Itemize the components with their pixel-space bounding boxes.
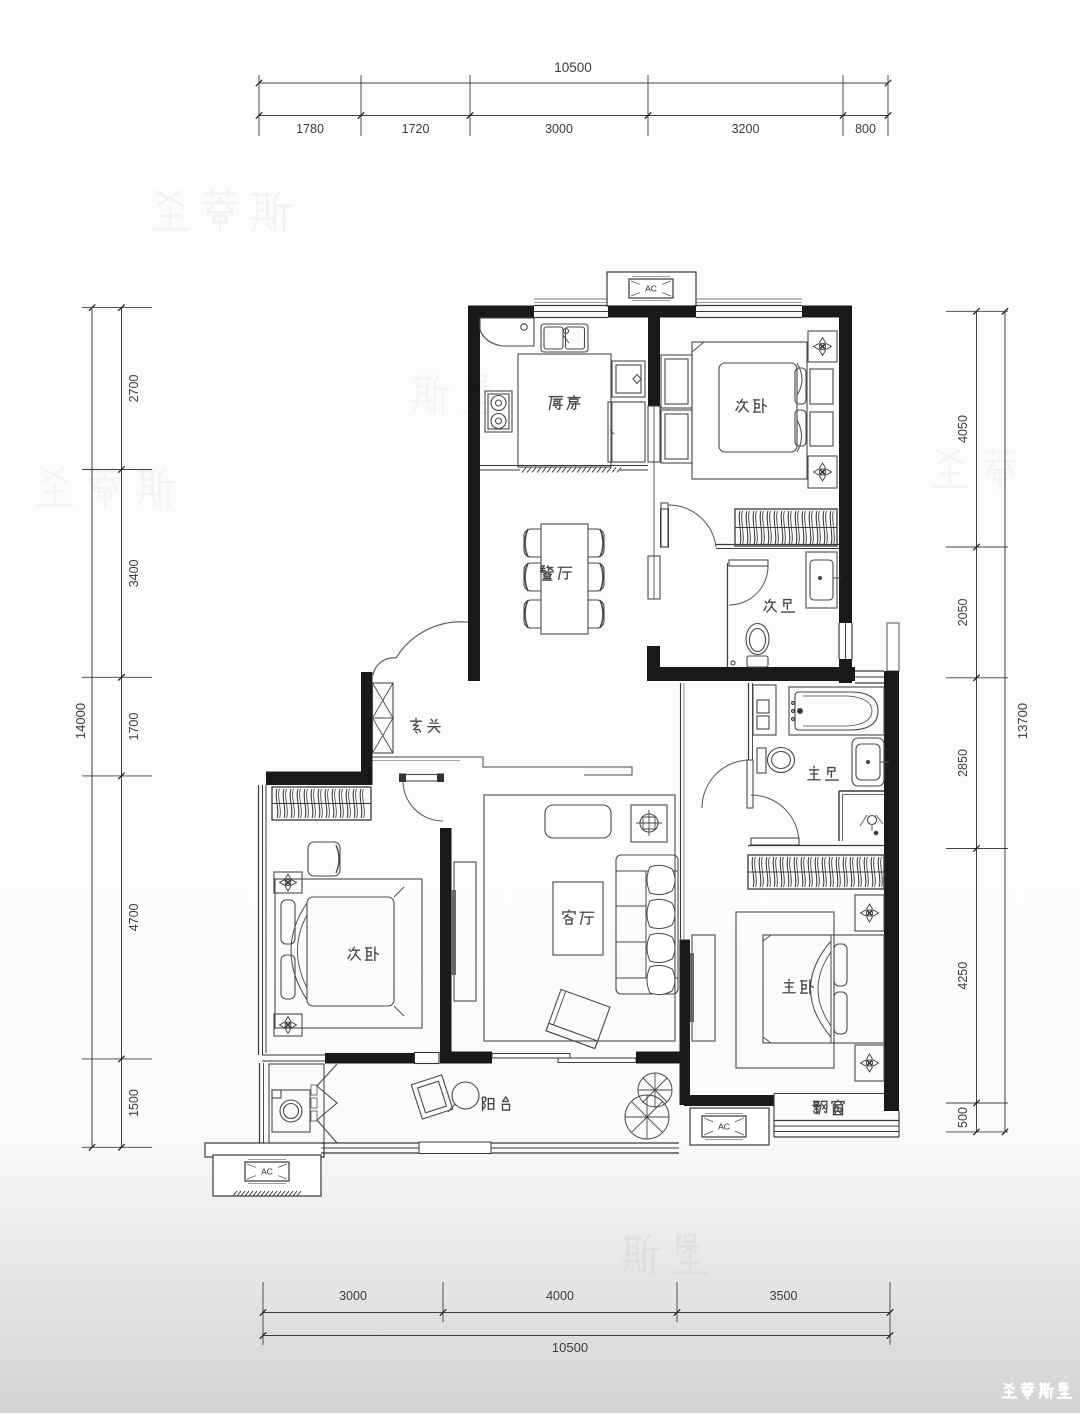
svg-text:3400: 3400: [127, 559, 141, 587]
svg-text:10500: 10500: [552, 1340, 588, 1355]
svg-text:1720: 1720: [402, 122, 430, 136]
svg-text:10500: 10500: [554, 60, 592, 75]
svg-text:4250: 4250: [956, 962, 970, 990]
svg-text:13700: 13700: [1015, 703, 1030, 739]
svg-text:2700: 2700: [127, 375, 141, 403]
svg-text:800: 800: [855, 122, 876, 136]
svg-text:3000: 3000: [545, 122, 573, 136]
svg-text:AC: AC: [645, 284, 657, 294]
svg-text:14000: 14000: [73, 703, 88, 739]
svg-text:500: 500: [956, 1107, 970, 1128]
svg-text:2050: 2050: [956, 598, 970, 626]
svg-text:3000: 3000: [339, 1289, 367, 1303]
svg-text:4050: 4050: [956, 415, 970, 443]
svg-text:AC: AC: [718, 1122, 730, 1132]
svg-text:AC: AC: [261, 1167, 273, 1177]
svg-text:1780: 1780: [296, 122, 324, 136]
svg-text:2850: 2850: [956, 749, 970, 777]
svg-text:4000: 4000: [546, 1289, 574, 1303]
svg-text:3200: 3200: [732, 122, 760, 136]
svg-text:1500: 1500: [127, 1089, 141, 1117]
svg-text:4700: 4700: [127, 903, 141, 931]
svg-text:1700: 1700: [127, 713, 141, 741]
svg-text:3500: 3500: [770, 1289, 798, 1303]
